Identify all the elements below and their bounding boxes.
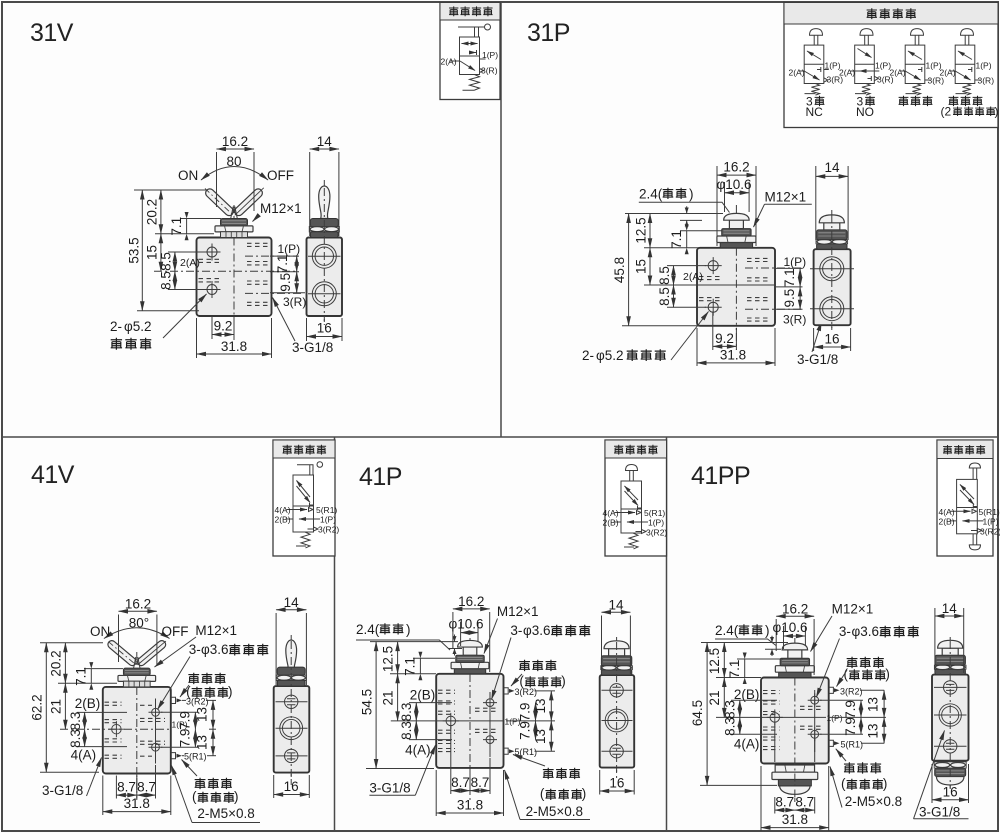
svg-text:3-: 3- (839, 624, 851, 639)
svg-text:2-M5×0.8: 2-M5×0.8 (845, 794, 902, 809)
svg-text:21: 21 (49, 699, 64, 714)
svg-text:1(P): 1(P) (784, 255, 807, 269)
svg-text:31P: 31P (527, 19, 570, 47)
svg-text:12.5: 12.5 (707, 648, 722, 674)
svg-text:14: 14 (608, 598, 624, 613)
svg-text:7.9: 7.9 (518, 721, 533, 740)
svg-text:16: 16 (943, 785, 958, 800)
svg-text:3(R2): 3(R2) (318, 525, 339, 535)
svg-text:1(P): 1(P) (278, 242, 301, 256)
svg-text:31.8: 31.8 (221, 339, 247, 354)
svg-text:3-: 3- (510, 623, 522, 638)
svg-text:NO: NO (856, 105, 874, 119)
svg-text:7.9: 7.9 (178, 729, 193, 748)
svg-text:1(P): 1(P) (320, 515, 336, 525)
svg-text:13: 13 (533, 729, 548, 744)
svg-text:3-G1/8: 3-G1/8 (292, 340, 333, 355)
svg-text:M12×1: M12×1 (260, 201, 302, 216)
svg-text:2(A): 2(A) (441, 57, 457, 67)
svg-text:13: 13 (195, 707, 210, 722)
svg-text:7.9: 7.9 (843, 700, 858, 719)
svg-text:7.9: 7.9 (843, 717, 858, 736)
svg-text:8.3: 8.3 (399, 703, 414, 722)
svg-text:1(P): 1(P) (983, 516, 999, 526)
svg-text:2-M5×0.8: 2-M5×0.8 (197, 806, 254, 821)
svg-text:2(A): 2(A) (890, 68, 906, 78)
svg-text:53.5: 53.5 (127, 237, 142, 263)
svg-text:2(B): 2(B) (75, 696, 101, 711)
svg-text:): ) (689, 187, 694, 202)
svg-text:21: 21 (381, 690, 396, 705)
svg-text:2(B): 2(B) (603, 518, 619, 528)
svg-text:5(R1): 5(R1) (316, 505, 337, 515)
svg-text:2(A): 2(A) (839, 68, 855, 78)
svg-text:(: ( (841, 776, 846, 791)
svg-text:φ10.6: φ10.6 (448, 617, 483, 632)
svg-text:1(P): 1(P) (482, 50, 498, 60)
svg-text:φ5.2: φ5.2 (124, 319, 152, 334)
svg-text:64.5: 64.5 (690, 700, 705, 726)
svg-text:): ) (582, 786, 587, 801)
svg-text:): ) (228, 684, 233, 699)
svg-text:4(A): 4(A) (603, 508, 619, 518)
svg-text:3-G1/8: 3-G1/8 (369, 781, 410, 796)
svg-text:2.4(: 2.4( (715, 623, 739, 638)
svg-text:7.1: 7.1 (275, 255, 290, 274)
svg-text:8.7: 8.7 (471, 775, 490, 790)
svg-text:8.3: 8.3 (723, 717, 738, 736)
svg-text:2-: 2- (110, 319, 122, 334)
svg-text:21: 21 (707, 690, 722, 705)
svg-text:41PP: 41PP (691, 462, 750, 490)
svg-text:2(B): 2(B) (275, 515, 291, 525)
svg-text:2-: 2- (582, 348, 594, 363)
svg-text:2(A): 2(A) (789, 68, 805, 78)
svg-text:): ) (765, 623, 770, 638)
svg-text:5(R1): 5(R1) (841, 739, 864, 749)
svg-text:3(R): 3(R) (283, 295, 306, 309)
svg-text:ON: ON (90, 624, 110, 639)
svg-text:9.2: 9.2 (214, 319, 233, 334)
svg-text:1(P): 1(P) (648, 518, 664, 528)
svg-text:7.1: 7.1 (403, 657, 418, 676)
svg-text:13: 13 (866, 697, 881, 712)
svg-text:7.1: 7.1 (727, 660, 742, 679)
svg-text:): ) (885, 667, 890, 682)
svg-text:5(R1): 5(R1) (979, 507, 1000, 517)
svg-text:31.8: 31.8 (457, 798, 483, 813)
svg-text:62.2: 62.2 (30, 694, 45, 720)
svg-text:16: 16 (317, 321, 332, 336)
svg-text:8.7: 8.7 (451, 775, 470, 790)
svg-text:45.8: 45.8 (612, 257, 627, 283)
svg-text:80°: 80° (129, 616, 149, 631)
svg-text:9.5: 9.5 (782, 289, 797, 308)
svg-text:2.4(: 2.4( (356, 622, 380, 637)
svg-text:φ3.6: φ3.6 (201, 642, 229, 657)
svg-text:φ3.6: φ3.6 (523, 623, 551, 638)
svg-text:2(A): 2(A) (180, 257, 200, 269)
svg-text:16: 16 (824, 332, 839, 347)
svg-text:): ) (883, 776, 888, 791)
svg-text:φ10.6: φ10.6 (772, 620, 807, 635)
svg-text:4(A): 4(A) (939, 507, 955, 517)
svg-text:3(R): 3(R) (481, 66, 498, 76)
svg-text:): ) (234, 789, 239, 804)
svg-text:2.4(: 2.4( (639, 187, 663, 202)
svg-text:4(A): 4(A) (734, 737, 760, 752)
svg-text:31.8: 31.8 (124, 796, 150, 811)
svg-text:8.5: 8.5 (159, 252, 174, 271)
svg-text:80: 80 (226, 154, 241, 169)
svg-text:8.7: 8.7 (137, 780, 156, 795)
svg-text:3(R2): 3(R2) (840, 686, 863, 696)
svg-text:20.2: 20.2 (49, 650, 64, 676)
svg-text:9.5: 9.5 (278, 273, 293, 292)
svg-text:8.5: 8.5 (159, 271, 174, 290)
svg-text:2(B): 2(B) (410, 688, 436, 703)
svg-text:16.2: 16.2 (222, 134, 248, 149)
svg-text:31.8: 31.8 (782, 812, 808, 827)
svg-text:14: 14 (284, 595, 300, 610)
svg-text:7.1: 7.1 (169, 217, 184, 236)
svg-text:16: 16 (609, 776, 624, 791)
svg-text:3-G1/8: 3-G1/8 (797, 352, 838, 367)
svg-text:ON: ON (178, 168, 198, 183)
svg-text:13: 13 (533, 698, 548, 713)
svg-text:M12×1: M12×1 (765, 190, 807, 205)
svg-text:3(R2): 3(R2) (515, 687, 538, 697)
svg-text:8.5: 8.5 (657, 287, 672, 306)
svg-text:2-M5×0.8: 2-M5×0.8 (526, 804, 583, 819)
svg-text:14: 14 (317, 134, 333, 149)
svg-text:16.2: 16.2 (782, 601, 808, 616)
svg-text:7.1: 7.1 (782, 268, 797, 287)
svg-text:5(R1): 5(R1) (515, 747, 538, 757)
svg-text:7.9: 7.9 (518, 703, 533, 722)
svg-text:8.5: 8.5 (657, 266, 672, 285)
svg-text:20.2: 20.2 (145, 199, 160, 225)
svg-text:8.3: 8.3 (399, 721, 414, 740)
svg-text:13: 13 (866, 723, 881, 738)
svg-text:NC: NC (806, 105, 824, 119)
svg-text:OFF: OFF (267, 168, 294, 183)
svg-text:2(B): 2(B) (939, 516, 955, 526)
svg-text:41V: 41V (31, 461, 75, 489)
svg-text:): ) (406, 622, 411, 637)
svg-text:8.3: 8.3 (723, 700, 738, 719)
svg-text:φ10.6: φ10.6 (716, 177, 751, 192)
svg-text:7.1: 7.1 (74, 667, 89, 686)
svg-text:4(A): 4(A) (275, 505, 291, 515)
svg-text:13: 13 (195, 735, 210, 750)
svg-text:31V: 31V (30, 19, 74, 47)
svg-text:31.8: 31.8 (720, 348, 746, 363)
svg-text:φ5.2: φ5.2 (596, 348, 624, 363)
svg-text:14: 14 (942, 601, 958, 616)
svg-text:8.7: 8.7 (117, 780, 136, 795)
svg-text:(: ( (540, 786, 545, 801)
svg-text:16.2: 16.2 (458, 594, 484, 609)
svg-text:1(P): 1(P) (827, 713, 843, 723)
svg-text:2(A): 2(A) (683, 271, 703, 283)
svg-text:3(R): 3(R) (978, 76, 995, 86)
svg-text:14: 14 (824, 160, 840, 175)
svg-text:(2: (2 (941, 105, 952, 119)
svg-text:41P: 41P (359, 463, 402, 491)
svg-text:12.5: 12.5 (381, 646, 396, 672)
svg-text:): ) (561, 674, 566, 689)
svg-text:15: 15 (634, 259, 649, 274)
svg-text:4(A): 4(A) (405, 743, 431, 758)
svg-text:16.2: 16.2 (723, 160, 749, 175)
svg-text:4(A): 4(A) (71, 748, 97, 763)
svg-text:OFF: OFF (162, 624, 189, 639)
svg-text:1(P): 1(P) (976, 61, 992, 71)
svg-text:(: ( (192, 789, 197, 804)
svg-text:3-: 3- (189, 642, 201, 657)
svg-text:16: 16 (284, 779, 299, 794)
svg-text:M12×1: M12×1 (195, 623, 237, 638)
svg-text:5(R1): 5(R1) (184, 752, 207, 762)
svg-text:3(R): 3(R) (783, 313, 806, 327)
svg-text:8.7: 8.7 (775, 795, 794, 810)
svg-text:8.3: 8.3 (68, 729, 83, 748)
svg-text:7.9: 7.9 (178, 711, 193, 730)
svg-text:3-G1/8: 3-G1/8 (919, 805, 960, 820)
svg-text:9.2: 9.2 (715, 331, 734, 346)
svg-text:7.1: 7.1 (669, 230, 684, 249)
svg-text:3-G1/8: 3-G1/8 (42, 783, 83, 798)
svg-text:8.7: 8.7 (795, 795, 814, 810)
svg-text:3(R2): 3(R2) (646, 528, 667, 538)
svg-text:8.3: 8.3 (68, 712, 83, 731)
svg-text:54.5: 54.5 (360, 689, 375, 715)
svg-text:2(A): 2(A) (940, 68, 956, 78)
svg-text:φ3.6: φ3.6 (852, 624, 880, 639)
svg-text:12.5: 12.5 (634, 217, 649, 243)
svg-text:M12×1: M12×1 (497, 604, 539, 619)
svg-text:16.2: 16.2 (125, 597, 151, 612)
svg-text:15: 15 (145, 245, 160, 260)
svg-text:3(R2): 3(R2) (980, 526, 1000, 536)
svg-text:5(R1): 5(R1) (644, 508, 665, 518)
svg-text:): ) (995, 105, 999, 119)
svg-text:M12×1: M12×1 (832, 602, 874, 617)
